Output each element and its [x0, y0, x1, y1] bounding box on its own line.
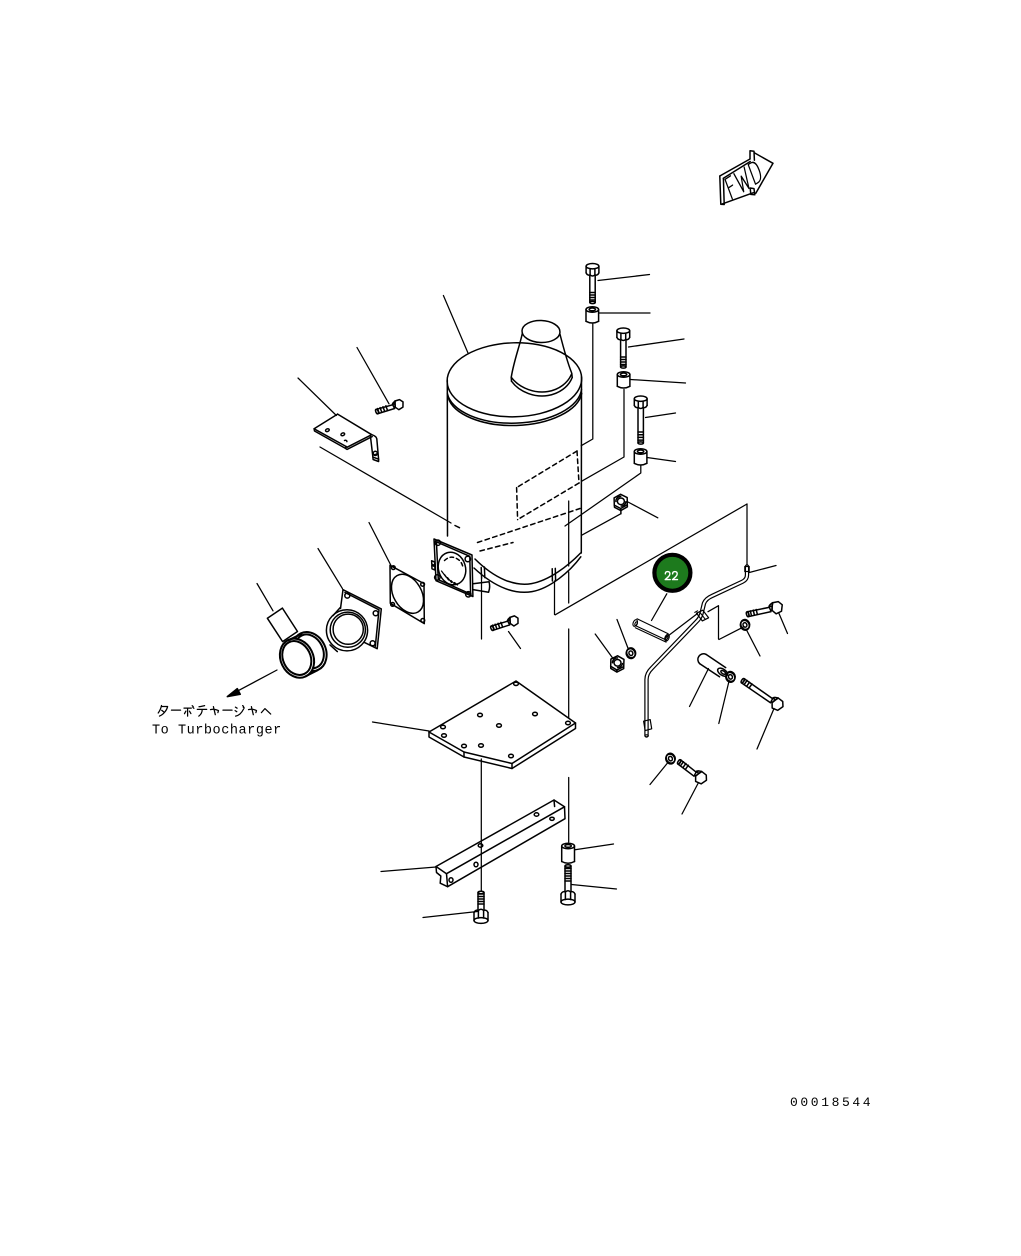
svg-text:To Turbocharger: To Turbocharger [152, 724, 282, 739]
svg-text:00018544: 00018544 [790, 1095, 873, 1110]
